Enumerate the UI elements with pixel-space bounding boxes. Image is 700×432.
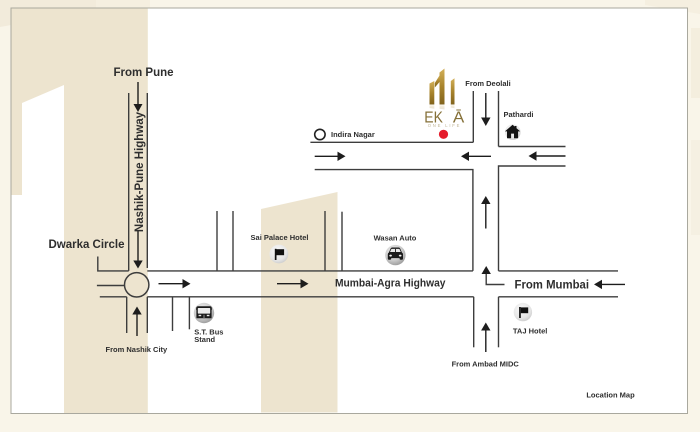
svg-text:From Nashik City: From Nashik City [106,345,169,354]
svg-text:TAJ Hotel: TAJ Hotel [513,327,547,336]
svg-text:Wasan Auto: Wasan Auto [374,234,417,243]
svg-text:Nashik-Pune Highway: Nashik-Pune Highway [134,111,146,232]
svg-text:Indira Nagar: Indira Nagar [331,130,375,139]
svg-text:Mumbai-Agra Highway: Mumbai-Agra Highway [335,277,446,289]
svg-text:Location Map: Location Map [586,390,635,399]
svg-text:Stand: Stand [194,335,215,344]
svg-text:From Deolali: From Deolali [465,79,510,88]
svg-text:From Pune: From Pune [113,67,173,79]
svg-text:From Mumbai: From Mumbai [515,279,590,291]
svg-text:Sai Palace Hotel: Sai Palace Hotel [251,233,309,242]
svg-text:ONE LIFE: ONE LIFE [428,123,461,128]
svg-text:From Ambad MIDC: From Ambad MIDC [452,360,520,369]
svg-text:Dwarka Circle: Dwarka Circle [48,239,124,251]
svg-text:Pathardi: Pathardi [503,110,533,119]
